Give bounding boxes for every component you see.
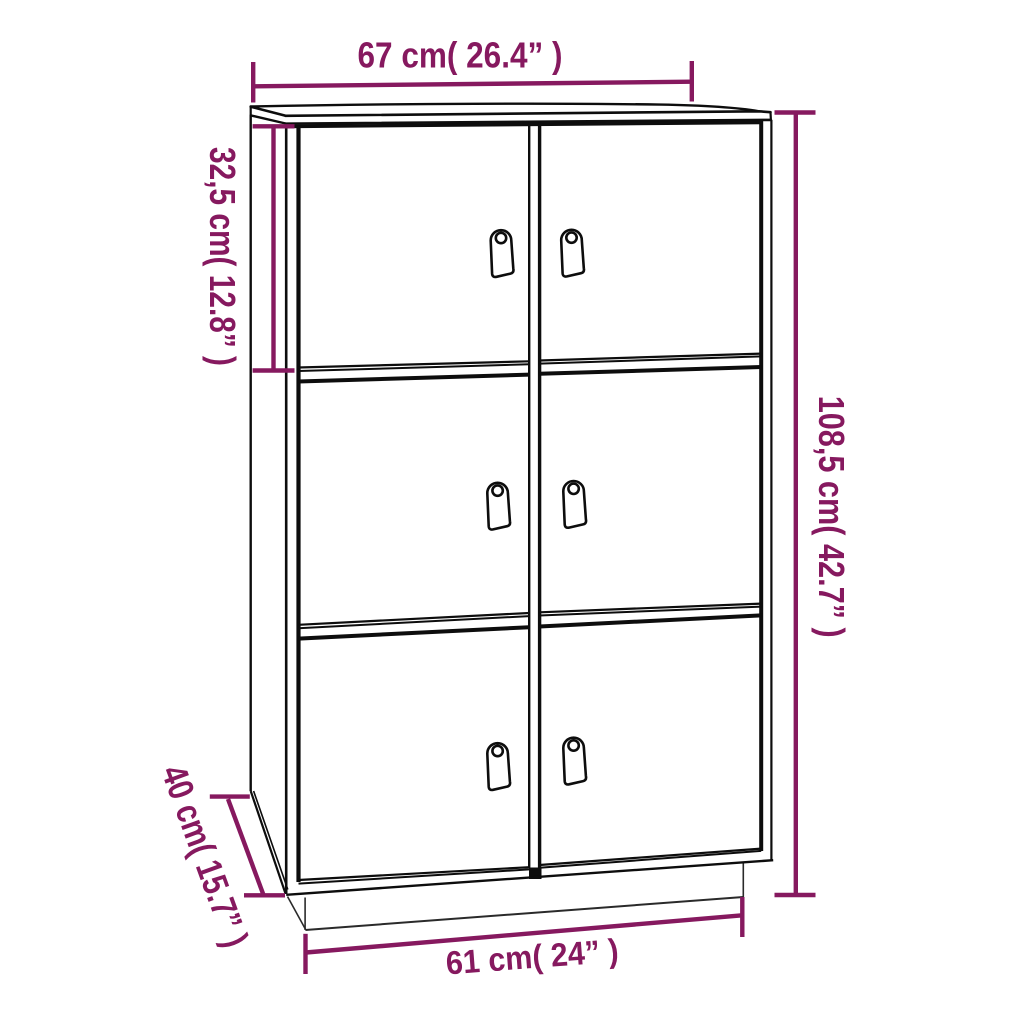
svg-text:67 cm( 26.4” ): 67 cm( 26.4” ): [358, 35, 563, 76]
svg-text:108,5 cm( 42.7” ): 108,5 cm( 42.7” ): [811, 396, 852, 638]
svg-text:32,5 cm( 12.8” ): 32,5 cm( 12.8” ): [202, 147, 243, 366]
svg-text:40 cm( 15.7” ): 40 cm( 15.7” ): [153, 760, 257, 953]
